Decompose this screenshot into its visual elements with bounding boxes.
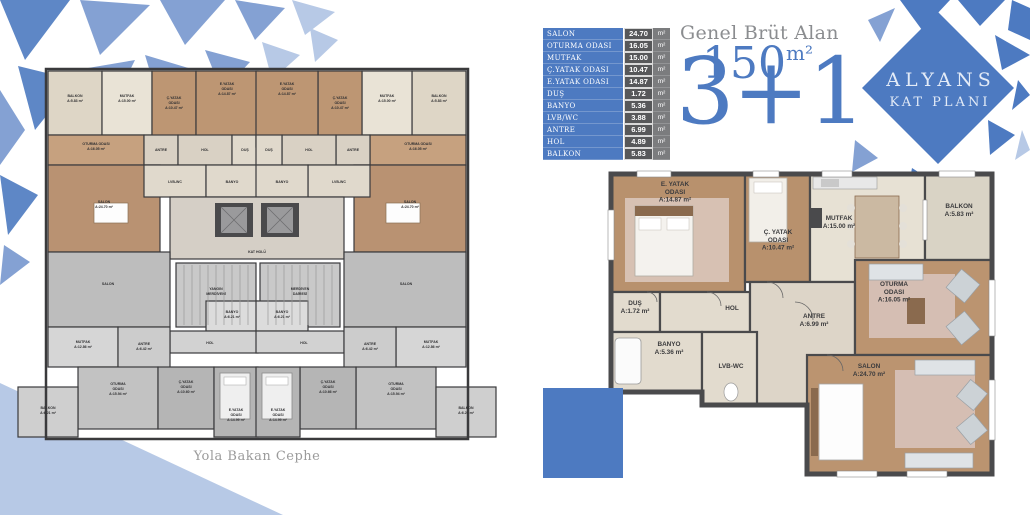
unit-label: m² <box>653 124 670 136</box>
room-label: MUTFAK <box>120 94 135 98</box>
dining-table <box>855 196 899 258</box>
room-area-value: 16.05 <box>624 40 653 52</box>
unit-label: m² <box>653 64 670 76</box>
room-label: A:15.00 m² <box>378 99 397 103</box>
rooms-layer <box>18 71 496 437</box>
room-area-value: 10.47 <box>624 64 653 76</box>
room-label: E. YATAK <box>661 181 690 188</box>
sofa <box>905 453 973 468</box>
room-label: MERDİVEN <box>291 287 310 291</box>
area-table-row: SALON24.70m² <box>543 28 670 40</box>
room-label: ANTRE <box>138 342 151 346</box>
area-table-row: DUŞ1.72m² <box>543 88 670 100</box>
room-area-value: 15.00 <box>624 52 653 64</box>
unit-label: m² <box>653 148 670 160</box>
room-label: SALON <box>102 282 115 286</box>
sink <box>821 179 839 187</box>
room-label: SALON <box>400 282 413 286</box>
stove <box>811 208 822 228</box>
room-label: HOL <box>206 341 214 345</box>
room-label: BALKON <box>459 406 474 410</box>
room-label: HOL <box>725 305 739 312</box>
room-label: A:6.99 m² <box>800 321 829 328</box>
room-label: A:6.42 m² <box>136 347 153 351</box>
room <box>344 252 466 327</box>
room <box>412 71 466 135</box>
room-label: A:10.47 m² <box>331 106 350 110</box>
room <box>660 292 750 332</box>
room-label: MUTFAK <box>424 340 439 344</box>
room-label: LVB-WC <box>168 180 182 184</box>
room-label: A:6.21 m² <box>274 315 291 319</box>
room-label: A:6.21 m² <box>224 315 241 319</box>
room-area-value: 14.87 <box>624 76 653 88</box>
room-label: A:16.05 m² <box>87 147 106 151</box>
room-label: E.YATAK <box>271 408 286 412</box>
gross-area-value: 150m² <box>702 38 813 89</box>
room-label: ODASI <box>112 387 123 391</box>
room-label: A:15.00 m² <box>823 223 855 230</box>
room-name: Ç.YATAK ODASI <box>543 64 623 76</box>
room-name: DUŞ <box>543 88 623 100</box>
room-area-value: 4.89 <box>624 136 653 148</box>
room <box>158 367 214 429</box>
bathtub <box>615 338 641 384</box>
room-label: A:1.72 m² <box>621 308 650 315</box>
room-label: A:16.05 m² <box>878 297 910 304</box>
room-label: ANTRE <box>364 342 377 346</box>
room-label: BANYO <box>276 310 289 314</box>
room-label: LVB-WC <box>718 363 743 370</box>
room-label: YANGIN <box>209 287 223 291</box>
room-label: SALON <box>98 200 111 204</box>
room-label: A:6.21 m² <box>40 411 57 415</box>
room-label: ANTRE <box>155 148 168 152</box>
room-label: DUŞ <box>241 148 249 152</box>
room <box>356 367 436 429</box>
room-label: A:10.66 m² <box>319 390 338 394</box>
room <box>48 252 170 327</box>
room-label: HOL <box>300 341 308 345</box>
room-label: OTURMA ODASI <box>404 142 431 146</box>
area-table-row: OTURMA ODASI16.05m² <box>543 40 670 52</box>
logo-line-1: ALYANS <box>885 69 996 91</box>
area-table-row: LVB/WC3.88m² <box>543 112 670 124</box>
unit-label: m² <box>653 136 670 148</box>
room-label: A:12.86 m² <box>422 345 441 349</box>
room-label: A:16.05 m² <box>409 147 428 151</box>
room-area-value: 1.72 <box>624 88 653 100</box>
double-bed <box>635 206 693 276</box>
room-label: BANYO <box>657 341 680 348</box>
area-table-row: MUTFAK15.00m² <box>543 52 670 64</box>
room-label: OTURMA <box>388 382 404 386</box>
room-label: BALKON <box>945 203 973 210</box>
room <box>170 331 258 353</box>
room-area-value: 24.70 <box>624 28 653 40</box>
room-label: Ç.YATAK <box>333 96 348 100</box>
room-name: BALKON <box>543 148 623 160</box>
room-name: ANTRE <box>543 124 623 136</box>
room-label: A:14.87 m² <box>278 92 297 96</box>
toilet <box>724 383 738 401</box>
floor-plan-unit-detail: E. YATAKODASIA:14.87 m²Ç. YATAKODASIA:10… <box>607 170 996 478</box>
room-label: KAT HOLÜ <box>248 250 266 254</box>
unit-label: m² <box>653 52 670 64</box>
room-area-value: 6.99 <box>624 124 653 136</box>
room-label: A:15.00 m² <box>118 99 137 103</box>
room-label: MUTFAK <box>826 215 853 222</box>
room <box>78 367 158 429</box>
room-label: SALON <box>404 200 417 204</box>
area-table-row: E.YATAK ODASI14.87m² <box>543 76 670 88</box>
area-table-row: BANYO5.36m² <box>543 100 670 112</box>
room-label: ODASI <box>768 237 788 244</box>
room-label: HOL <box>305 148 313 152</box>
room-label: ANTRE <box>347 148 360 152</box>
room-label: ODASI <box>180 385 191 389</box>
room <box>362 71 412 135</box>
room-label: A:14.99 m² <box>269 418 288 422</box>
unit-label: m² <box>653 100 670 112</box>
sofa <box>915 360 975 375</box>
blue-square-accent <box>543 388 623 478</box>
room-name: OTURMA ODASI <box>543 40 623 52</box>
room-label: ODASI <box>390 387 401 391</box>
unit-label: m² <box>653 40 670 52</box>
room-label: A:15.94 m² <box>387 392 406 396</box>
room-area-value: 5.83 <box>624 148 653 160</box>
room-label: DUŞ <box>628 300 642 307</box>
area-table-row: Ç.YATAK ODASI10.47m² <box>543 64 670 76</box>
area-table: SALON24.70m²OTURMA ODASI16.05m²MUTFAK15.… <box>543 28 670 160</box>
room-name: E.YATAK ODASI <box>543 76 623 88</box>
room-label: A:14.87 m² <box>218 92 237 96</box>
room-label: MUTFAK <box>380 94 395 98</box>
room-label: LVB-WC <box>332 180 346 184</box>
room-area-value: 5.36 <box>624 100 653 112</box>
room-label: A:15.94 m² <box>109 392 128 396</box>
room-label: DUŞ <box>265 148 273 152</box>
room-label: ODASI <box>168 101 179 105</box>
room-name: BANYO <box>543 100 623 112</box>
room-label: A:10.47 m² <box>165 106 184 110</box>
room-label: Ç.YATAK <box>179 380 194 384</box>
room <box>48 71 102 135</box>
room-label: ODASI <box>884 289 904 296</box>
room-label: Ç.YATAK <box>321 380 336 384</box>
room-label: A:6.42 m² <box>362 347 379 351</box>
carpet <box>895 370 975 448</box>
room-label: ODASI <box>665 189 685 196</box>
room-label: BALKON <box>68 94 83 98</box>
area-table-row: HOL4.89m² <box>543 136 670 148</box>
unit-label: m² <box>653 112 670 124</box>
room-label: MUTFAK <box>76 340 91 344</box>
room <box>102 71 152 135</box>
room-label: OTURMA ODASI <box>82 142 109 146</box>
plan-caption: Yola Bakan Cephe <box>157 449 357 464</box>
room-label: A:5.83 m² <box>945 211 974 218</box>
room-label: BANYO <box>226 180 239 184</box>
room-label: ODASI <box>230 413 241 417</box>
room-label: SALON <box>858 363 881 370</box>
room-label: ODASI <box>281 87 292 91</box>
room-label: E.YATAK <box>280 82 295 86</box>
room-label: HOL <box>201 148 209 152</box>
sofa <box>869 264 923 280</box>
room-label: OTURMA <box>110 382 126 386</box>
room-area-value: 3.88 <box>624 112 653 124</box>
room-label: ODASI <box>322 385 333 389</box>
area-table-row: ANTRE6.99m² <box>543 124 670 136</box>
unit-label: m² <box>653 28 670 40</box>
room-label: E.YATAK <box>220 82 235 86</box>
room-label: A:14.87 m² <box>659 197 691 204</box>
room-label: A:14.99 m² <box>227 418 246 422</box>
room-label: OTURMA <box>880 281 908 288</box>
room-label: DAİRESİ <box>293 292 307 296</box>
room-label: A:24.70 m² <box>401 205 420 209</box>
room-name: MUTFAK <box>543 52 623 64</box>
room-label: ODASI <box>334 101 345 105</box>
room-label: A:6.21 m² <box>458 411 475 415</box>
room-label: A:12.86 m² <box>74 345 93 349</box>
room-label: MERDİVENİ <box>206 292 225 296</box>
room-label: A:5.36 m² <box>655 349 684 356</box>
room-name: SALON <box>543 28 623 40</box>
room <box>300 367 356 429</box>
dining-table <box>819 384 863 460</box>
area-unit: m² <box>786 41 813 65</box>
unit-label: m² <box>653 88 670 100</box>
unit-label: m² <box>653 76 670 88</box>
room-label: A:10.60 m² <box>177 390 196 394</box>
room-label: A:24.70 m² <box>853 371 885 378</box>
room-label: Ç.YATAK <box>167 96 182 100</box>
room-label: E.YATAK <box>229 408 244 412</box>
area-table-row: BALKON5.83m² <box>543 148 670 160</box>
logo-line-2: KAT PLANI <box>890 95 991 110</box>
room-name: LVB/WC <box>543 112 623 124</box>
room-label: ODASI <box>221 87 232 91</box>
brochure-page: ALYANS KAT PLANI BALKONA:5.83 m²MUTFAKA:… <box>0 0 1030 515</box>
room-label: A:10.47 m² <box>762 245 794 252</box>
room-label: BALKON <box>432 94 447 98</box>
room-label: A:24.70 m² <box>95 205 114 209</box>
room-label: A:5.83 m² <box>67 99 84 103</box>
room-label: BALKON <box>41 406 56 410</box>
room-label: Ç. YATAK <box>764 229 793 236</box>
floor-plan-overview: BALKONA:5.83 m²MUTFAKA:15.00 m²Ç.YATAKOD… <box>10 57 504 447</box>
room-label: ANTRE <box>803 313 826 320</box>
sideboard <box>811 388 818 456</box>
room-name: HOL <box>543 136 623 148</box>
room-label: ODASI <box>272 413 283 417</box>
room-label: A:5.83 m² <box>431 99 448 103</box>
room-label: BANYO <box>276 180 289 184</box>
room-label: BANYO <box>226 310 239 314</box>
